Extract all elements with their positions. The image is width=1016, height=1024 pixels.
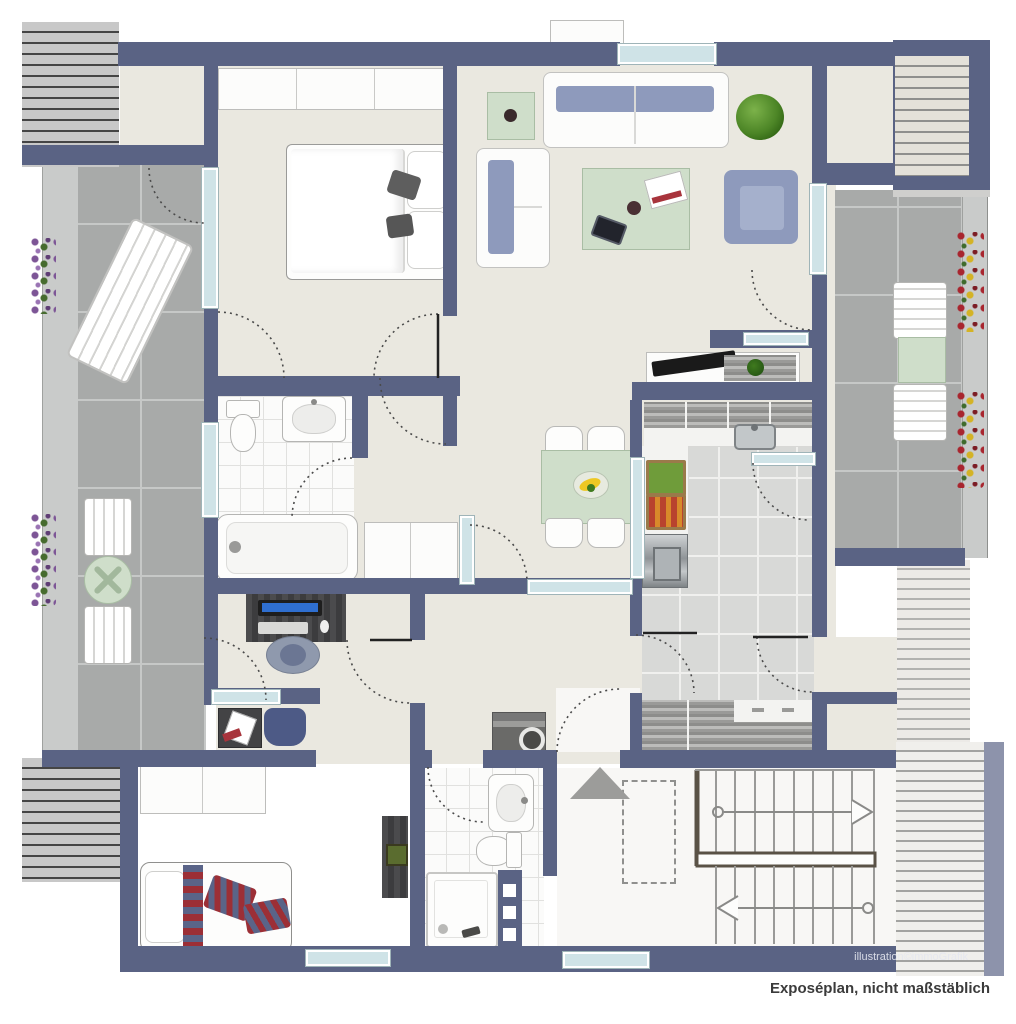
kitchen-base-cabinets-2: [734, 722, 814, 750]
cabinet-divider: [687, 700, 689, 750]
wall: [120, 946, 896, 972]
wall: [812, 66, 827, 184]
wall: [420, 750, 432, 768]
wall: [714, 42, 894, 66]
terrace-table: [898, 337, 946, 383]
closet-divider: [410, 523, 411, 581]
terrace-chair: [84, 498, 132, 556]
terrace-chair: [893, 282, 947, 339]
wall: [812, 272, 827, 347]
kitchen-counter: [644, 428, 812, 447]
wall: [630, 400, 642, 458]
wardrobe-divider: [296, 69, 297, 109]
shelf-niche: [503, 884, 516, 897]
wall: [120, 752, 138, 968]
tub-faucet: [229, 541, 241, 553]
monitor-screen: [262, 603, 318, 612]
interior-door: [752, 453, 815, 465]
cup: [627, 201, 641, 215]
wall: [812, 345, 827, 637]
office-chair-seat: [280, 644, 306, 666]
faucet: [311, 399, 317, 405]
sofa-seam: [634, 86, 636, 144]
wall: [812, 692, 827, 752]
wall: [22, 145, 218, 165]
plant: [736, 94, 784, 140]
wall: [630, 693, 642, 750]
vegetable-crate-red: [646, 494, 686, 530]
interior-window: [528, 580, 632, 594]
basin: [292, 404, 336, 434]
loveseat-cushions: [488, 160, 514, 254]
cabinet-divider: [727, 402, 729, 428]
window: [202, 423, 218, 517]
roof-shadow-top-right: [893, 190, 990, 197]
wall: [543, 750, 557, 876]
wall: [827, 163, 895, 185]
toilet-tank-2: [506, 832, 522, 868]
wall: [620, 750, 896, 768]
wall: [632, 382, 814, 400]
desk: [246, 592, 346, 642]
wardrobe-2: [140, 766, 266, 814]
dashed-storage-area: [622, 780, 676, 884]
oven-door: [653, 547, 681, 581]
kitchen-base-cabinets: [642, 700, 734, 750]
interior-window: [460, 516, 474, 584]
bathtub: [216, 514, 358, 582]
dining-chair: [545, 518, 583, 548]
washbasin: [282, 396, 346, 442]
cushion: [386, 213, 415, 238]
roof-overhang-bottom-left: [22, 758, 120, 882]
fruit: [587, 484, 595, 492]
bed-2: [140, 862, 292, 952]
flower-box: [956, 392, 984, 488]
bath-closet: [364, 522, 458, 582]
roof-overhang-top-right: [895, 56, 969, 176]
hall-side-table: [218, 708, 262, 748]
flower-box: [30, 514, 56, 606]
pot-plant: [747, 359, 764, 376]
decor-item: [504, 109, 517, 122]
shelf-niche: [503, 906, 516, 919]
flower-box: [30, 238, 56, 314]
window: [744, 333, 808, 345]
wall: [443, 66, 457, 316]
terrace-chair: [84, 606, 132, 664]
wall: [204, 376, 460, 396]
roof-overhang-bottom-right: [896, 742, 988, 976]
loveseat: [476, 148, 550, 268]
pillow: [407, 211, 447, 269]
wardrobe-divider: [202, 767, 203, 813]
tablet: [590, 214, 628, 246]
roof-edge-bottom-right: [984, 742, 1004, 976]
striped-runner: [183, 865, 203, 949]
window: [618, 44, 716, 64]
wardrobe: [218, 68, 454, 110]
kitchen-wall-cabinets: [644, 402, 812, 428]
tub-inner: [226, 522, 348, 574]
dresser-decor: [386, 844, 408, 866]
watermark: illustration©immoGrafik: [854, 951, 968, 963]
mouse: [320, 620, 329, 633]
dining-chair: [587, 518, 625, 548]
cabinet: [724, 355, 796, 381]
wall: [204, 513, 218, 705]
window: [306, 950, 390, 966]
balcony-door: [202, 168, 218, 308]
double-bed: [286, 144, 457, 280]
loveseat-seam: [514, 206, 542, 208]
handle: [782, 708, 794, 712]
fruit-bowl: [573, 471, 609, 499]
terrace-door: [810, 184, 826, 274]
terrace-chair: [893, 384, 947, 441]
wardrobe-divider: [374, 69, 375, 109]
washing-machine: [492, 712, 546, 754]
magazine: [644, 171, 688, 210]
wall: [118, 42, 620, 66]
faucet: [521, 797, 528, 804]
shower-drain: [438, 924, 448, 934]
niche-top-right: [827, 66, 893, 164]
flower-box: [956, 232, 984, 332]
entrance-floor: [557, 768, 896, 946]
niche-top-left: [120, 62, 206, 148]
magazine-stripe: [652, 190, 683, 204]
striped-cushion: [243, 897, 292, 934]
coffee-table: [582, 168, 690, 250]
entry-exterior: [556, 688, 640, 752]
cabinet-divider: [685, 402, 687, 428]
handle: [752, 708, 764, 712]
vegetable-crate-green: [646, 460, 686, 496]
wall: [204, 303, 218, 425]
roof-overhang-mid-right: [897, 560, 970, 742]
wall: [410, 703, 425, 950]
wall: [827, 692, 897, 704]
faucet: [751, 424, 758, 431]
monitor: [258, 600, 322, 616]
window: [212, 690, 280, 704]
wall: [410, 588, 425, 640]
pillow: [145, 871, 185, 943]
kitchen-counter-right: [734, 700, 814, 722]
stove: [642, 534, 688, 588]
dining-table: [541, 450, 633, 524]
armchair-seat: [740, 186, 784, 230]
keyboard: [258, 622, 308, 634]
wall: [352, 396, 368, 458]
side-table: [487, 92, 535, 140]
office-chair: [266, 636, 320, 674]
washbasin-2: [488, 774, 534, 832]
bath2-shelf-wall: [498, 870, 522, 948]
terrace-round-table: [84, 556, 132, 604]
shower: [426, 872, 498, 948]
sofa: [543, 72, 729, 148]
duvet: [291, 149, 405, 273]
wall: [42, 750, 316, 767]
shelf-niche: [503, 928, 516, 941]
toilet: [230, 414, 256, 452]
caption: Exposéplan, nicht maßstäblich: [770, 980, 990, 997]
dresser: [382, 816, 408, 898]
hall-chair: [264, 708, 306, 746]
wall: [835, 548, 965, 566]
interior-window: [631, 458, 644, 578]
kitchen-sink: [734, 424, 776, 450]
window: [563, 952, 649, 968]
armchair: [724, 170, 798, 244]
floor-plan: illustration©immoGrafik Exposéplan, nich…: [0, 0, 1016, 1024]
